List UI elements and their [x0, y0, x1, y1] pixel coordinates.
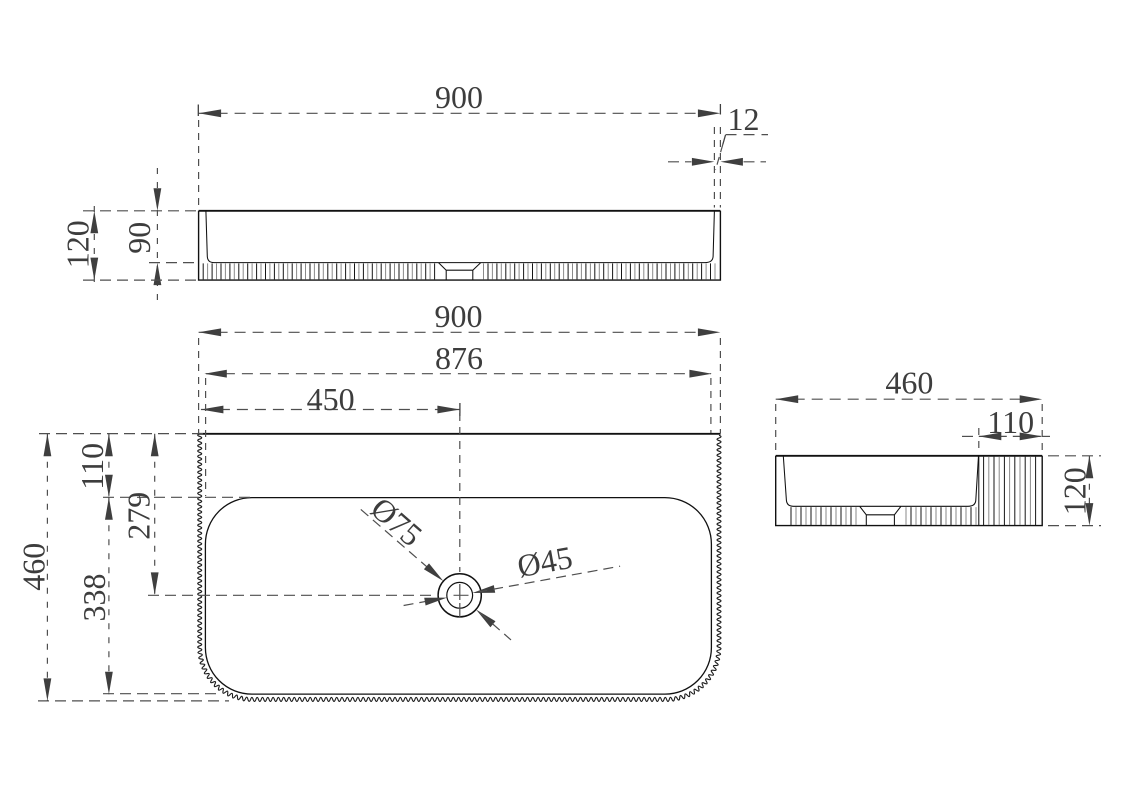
svg-text:90: 90	[121, 222, 157, 254]
svg-text:Ø45: Ø45	[514, 539, 575, 584]
svg-text:460: 460	[15, 543, 51, 591]
svg-text:900: 900	[435, 298, 483, 334]
svg-text:279: 279	[121, 492, 157, 540]
svg-text:876: 876	[435, 340, 483, 376]
svg-text:900: 900	[435, 79, 483, 115]
svg-text:338: 338	[76, 574, 112, 622]
svg-text:120: 120	[60, 220, 96, 268]
svg-text:Ø75: Ø75	[364, 490, 429, 553]
svg-text:460: 460	[885, 365, 933, 401]
svg-text:12: 12	[728, 101, 760, 137]
svg-text:110: 110	[74, 443, 110, 490]
svg-text:450: 450	[307, 381, 355, 417]
svg-text:120: 120	[1056, 467, 1092, 515]
svg-text:110: 110	[987, 404, 1034, 440]
